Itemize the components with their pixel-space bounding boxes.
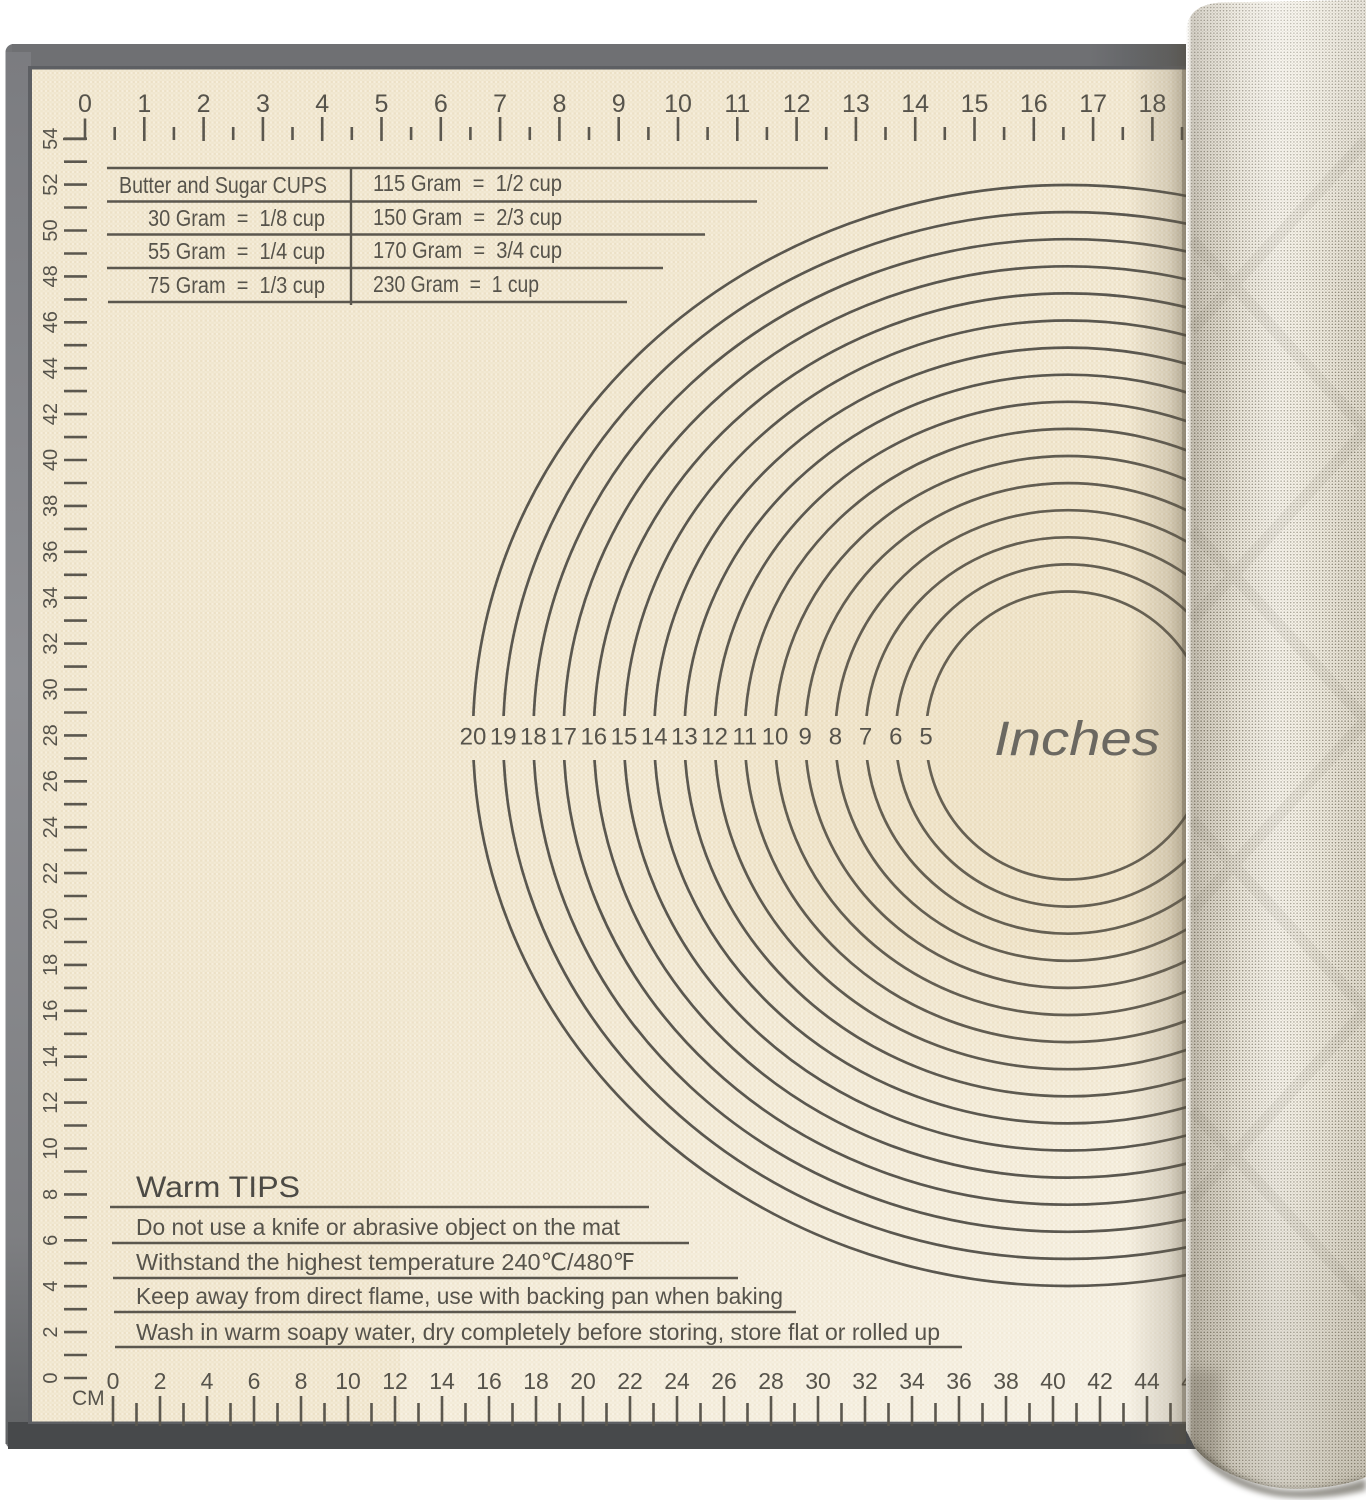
svg-text:170 Gram = 3/4 cup: 170 Gram = 3/4 cup	[373, 237, 562, 263]
svg-text:48: 48	[40, 265, 62, 287]
svg-text:13: 13	[671, 724, 698, 751]
svg-text:Butter and Sugar CUPS: Butter and Sugar CUPS	[119, 172, 327, 198]
svg-text:52: 52	[40, 173, 62, 195]
svg-text:30: 30	[805, 1368, 831, 1394]
svg-text:11: 11	[732, 724, 757, 751]
svg-text:6: 6	[434, 90, 448, 118]
svg-text:2: 2	[197, 90, 211, 118]
svg-text:14: 14	[901, 90, 929, 118]
svg-text:19: 19	[490, 724, 517, 751]
svg-text:40: 40	[1040, 1368, 1066, 1394]
svg-text:Do not use a knife or abrasive: Do not use a knife or abrasive object on…	[136, 1214, 620, 1240]
svg-text:36: 36	[946, 1368, 972, 1394]
svg-text:12: 12	[783, 90, 811, 118]
svg-text:6: 6	[248, 1368, 261, 1394]
svg-text:17: 17	[550, 724, 577, 751]
svg-text:46: 46	[40, 311, 62, 333]
svg-text:7: 7	[493, 90, 507, 118]
svg-text:5: 5	[919, 724, 932, 751]
svg-text:115 Gram = 1/2 cup: 115 Gram = 1/2 cup	[373, 170, 562, 196]
svg-text:9: 9	[799, 724, 812, 751]
svg-text:10: 10	[40, 1137, 62, 1159]
svg-text:26: 26	[40, 770, 62, 792]
svg-text:28: 28	[40, 724, 62, 746]
svg-text:8: 8	[40, 1189, 62, 1200]
svg-text:12: 12	[701, 724, 728, 751]
svg-text:8: 8	[552, 90, 566, 118]
svg-text:26: 26	[711, 1368, 737, 1394]
svg-text:75 Gram = 1/3 cup: 75 Gram = 1/3 cup	[148, 272, 325, 298]
svg-text:Keep away from direct flame, u: Keep away from direct flame, use with ba…	[136, 1283, 783, 1309]
svg-text:5: 5	[375, 90, 389, 118]
svg-text:8: 8	[829, 724, 842, 751]
svg-text:Withstand the highest temperat: Withstand the highest temperature 240℃/4…	[136, 1249, 635, 1275]
svg-text:16: 16	[1020, 90, 1048, 118]
svg-text:1: 1	[137, 90, 151, 118]
svg-text:14: 14	[429, 1368, 455, 1394]
svg-text:55 Gram = 1/4 cup: 55 Gram = 1/4 cup	[148, 238, 325, 264]
svg-text:22: 22	[617, 1368, 643, 1394]
svg-text:44: 44	[40, 357, 62, 379]
svg-text:4: 4	[201, 1368, 214, 1394]
svg-text:15: 15	[961, 90, 989, 118]
svg-text:10: 10	[664, 90, 692, 118]
svg-text:7: 7	[859, 724, 872, 751]
svg-text:42: 42	[1087, 1368, 1113, 1394]
svg-text:17: 17	[1079, 90, 1107, 118]
svg-text:230 Gram = 1 cup: 230 Gram = 1 cup	[373, 271, 539, 297]
svg-text:16: 16	[580, 724, 607, 751]
svg-text:15: 15	[611, 724, 638, 751]
svg-text:32: 32	[852, 1368, 878, 1394]
svg-text:12: 12	[40, 1091, 62, 1113]
svg-text:38: 38	[40, 495, 62, 517]
svg-text:20: 20	[40, 908, 62, 930]
svg-text:Wash in warm soapy water, dry: Wash in warm soapy water, dry completely…	[136, 1319, 940, 1345]
svg-text:18: 18	[523, 1368, 549, 1394]
svg-text:10: 10	[335, 1368, 361, 1394]
svg-text:4: 4	[315, 90, 329, 118]
svg-text:16: 16	[476, 1368, 502, 1394]
svg-text:16: 16	[40, 1000, 62, 1022]
svg-text:18: 18	[40, 954, 62, 976]
svg-text:54: 54	[40, 128, 62, 150]
svg-text:14: 14	[40, 1046, 62, 1068]
svg-text:50: 50	[40, 219, 62, 241]
svg-text:12: 12	[382, 1368, 408, 1394]
svg-text:18: 18	[520, 724, 547, 751]
svg-text:2: 2	[40, 1327, 62, 1338]
svg-text:32: 32	[40, 632, 62, 654]
svg-text:20: 20	[570, 1368, 596, 1394]
svg-text:10: 10	[762, 724, 789, 751]
svg-text:22: 22	[40, 862, 62, 884]
svg-text:13: 13	[842, 90, 870, 118]
svg-text:Warm TIPS: Warm TIPS	[136, 1171, 300, 1204]
svg-text:20: 20	[460, 724, 487, 751]
svg-text:11: 11	[724, 90, 750, 118]
svg-text:40: 40	[40, 449, 62, 471]
svg-text:0: 0	[40, 1372, 62, 1383]
svg-text:0: 0	[107, 1368, 120, 1394]
svg-text:36: 36	[40, 541, 62, 563]
svg-text:30 Gram = 1/8 cup: 30 Gram = 1/8 cup	[148, 205, 325, 231]
svg-text:14: 14	[641, 724, 668, 751]
svg-text:34: 34	[899, 1368, 925, 1394]
svg-text:28: 28	[758, 1368, 784, 1394]
svg-text:150 Gram = 2/3 cup: 150 Gram = 2/3 cup	[373, 204, 562, 230]
svg-text:24: 24	[40, 816, 62, 838]
svg-text:24: 24	[664, 1368, 690, 1394]
svg-text:34: 34	[40, 587, 62, 609]
svg-text:8: 8	[295, 1368, 308, 1394]
svg-text:42: 42	[40, 403, 62, 425]
svg-text:4: 4	[40, 1281, 62, 1292]
svg-text:38: 38	[993, 1368, 1019, 1394]
svg-text:9: 9	[612, 90, 626, 118]
svg-text:6: 6	[889, 724, 902, 751]
svg-text:0: 0	[78, 90, 92, 118]
svg-text:6: 6	[40, 1235, 62, 1246]
svg-text:30: 30	[40, 678, 62, 700]
svg-text:2: 2	[154, 1368, 167, 1394]
svg-text:3: 3	[256, 90, 270, 118]
svg-text:CM: CM	[72, 1387, 105, 1410]
